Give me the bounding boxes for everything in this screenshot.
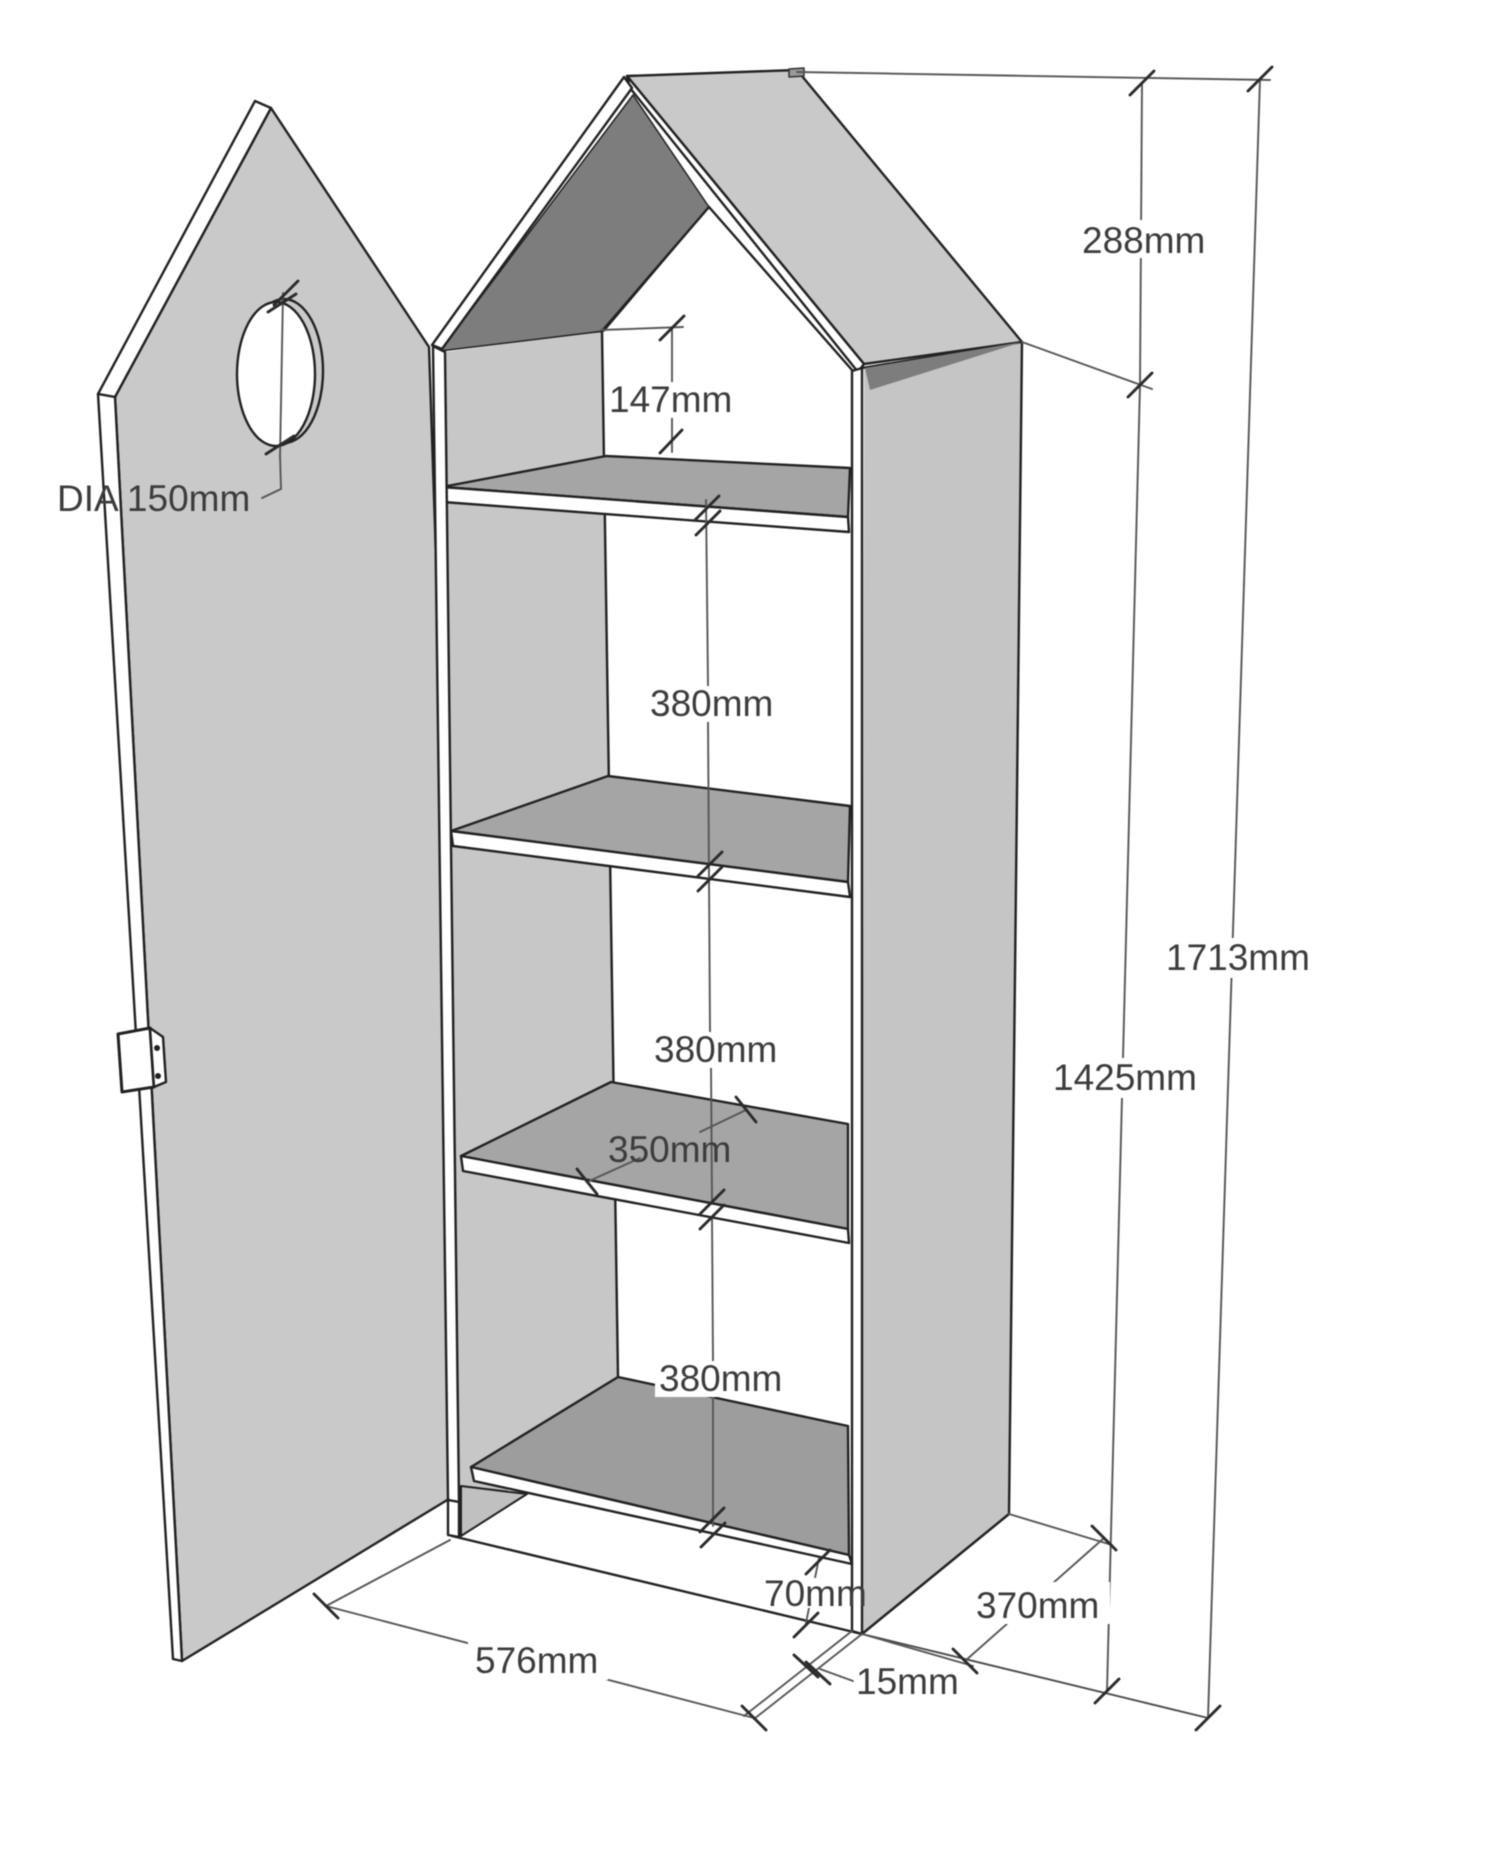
svg-text:380mm: 380mm (654, 1029, 777, 1070)
svg-text:380mm: 380mm (659, 1358, 782, 1399)
svg-text:1425mm: 1425mm (1053, 1057, 1197, 1098)
svg-text:70mm: 70mm (764, 1573, 867, 1614)
svg-text:380mm: 380mm (650, 683, 773, 724)
svg-text:576mm: 576mm (475, 1640, 598, 1681)
svg-text:147mm: 147mm (609, 379, 732, 420)
svg-text:DIA 150mm: DIA 150mm (57, 478, 250, 519)
svg-text:350mm: 350mm (608, 1129, 731, 1170)
svg-text:15mm: 15mm (856, 1661, 959, 1702)
svg-text:1713mm: 1713mm (1166, 937, 1310, 978)
svg-text:288mm: 288mm (1082, 220, 1205, 261)
svg-text:370mm: 370mm (976, 1585, 1099, 1626)
